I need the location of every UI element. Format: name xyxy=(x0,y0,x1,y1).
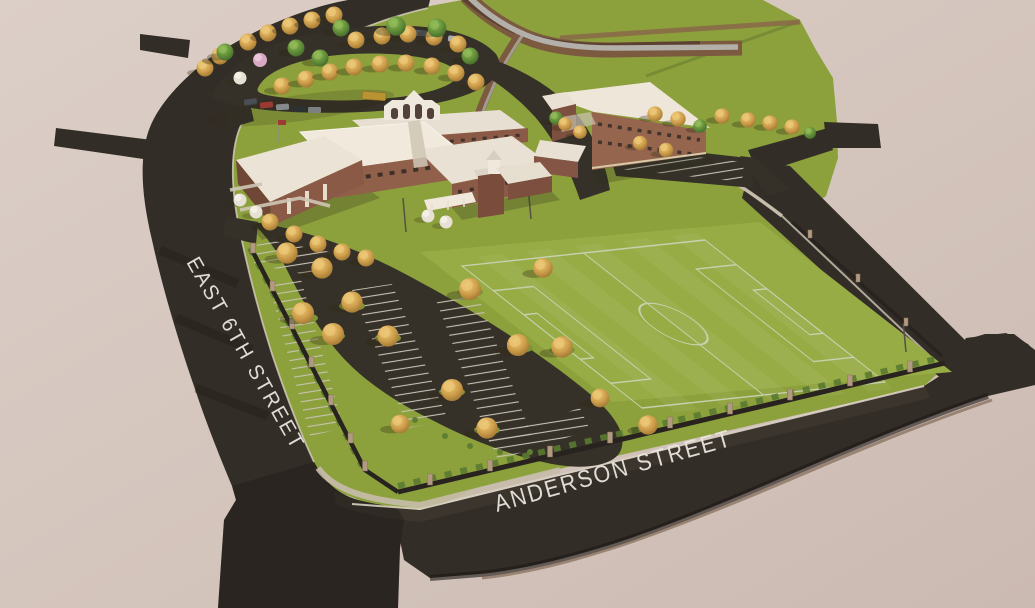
aerial-site-plan: EAST 6TH STREET ANDERSON STREET xyxy=(0,0,1035,608)
site-rendering: EAST 6TH STREET ANDERSON STREET xyxy=(0,0,1035,608)
gym-wall xyxy=(478,172,504,218)
entry-tower xyxy=(488,160,500,174)
dead-end-road-stub xyxy=(824,122,881,148)
flag xyxy=(278,120,286,125)
